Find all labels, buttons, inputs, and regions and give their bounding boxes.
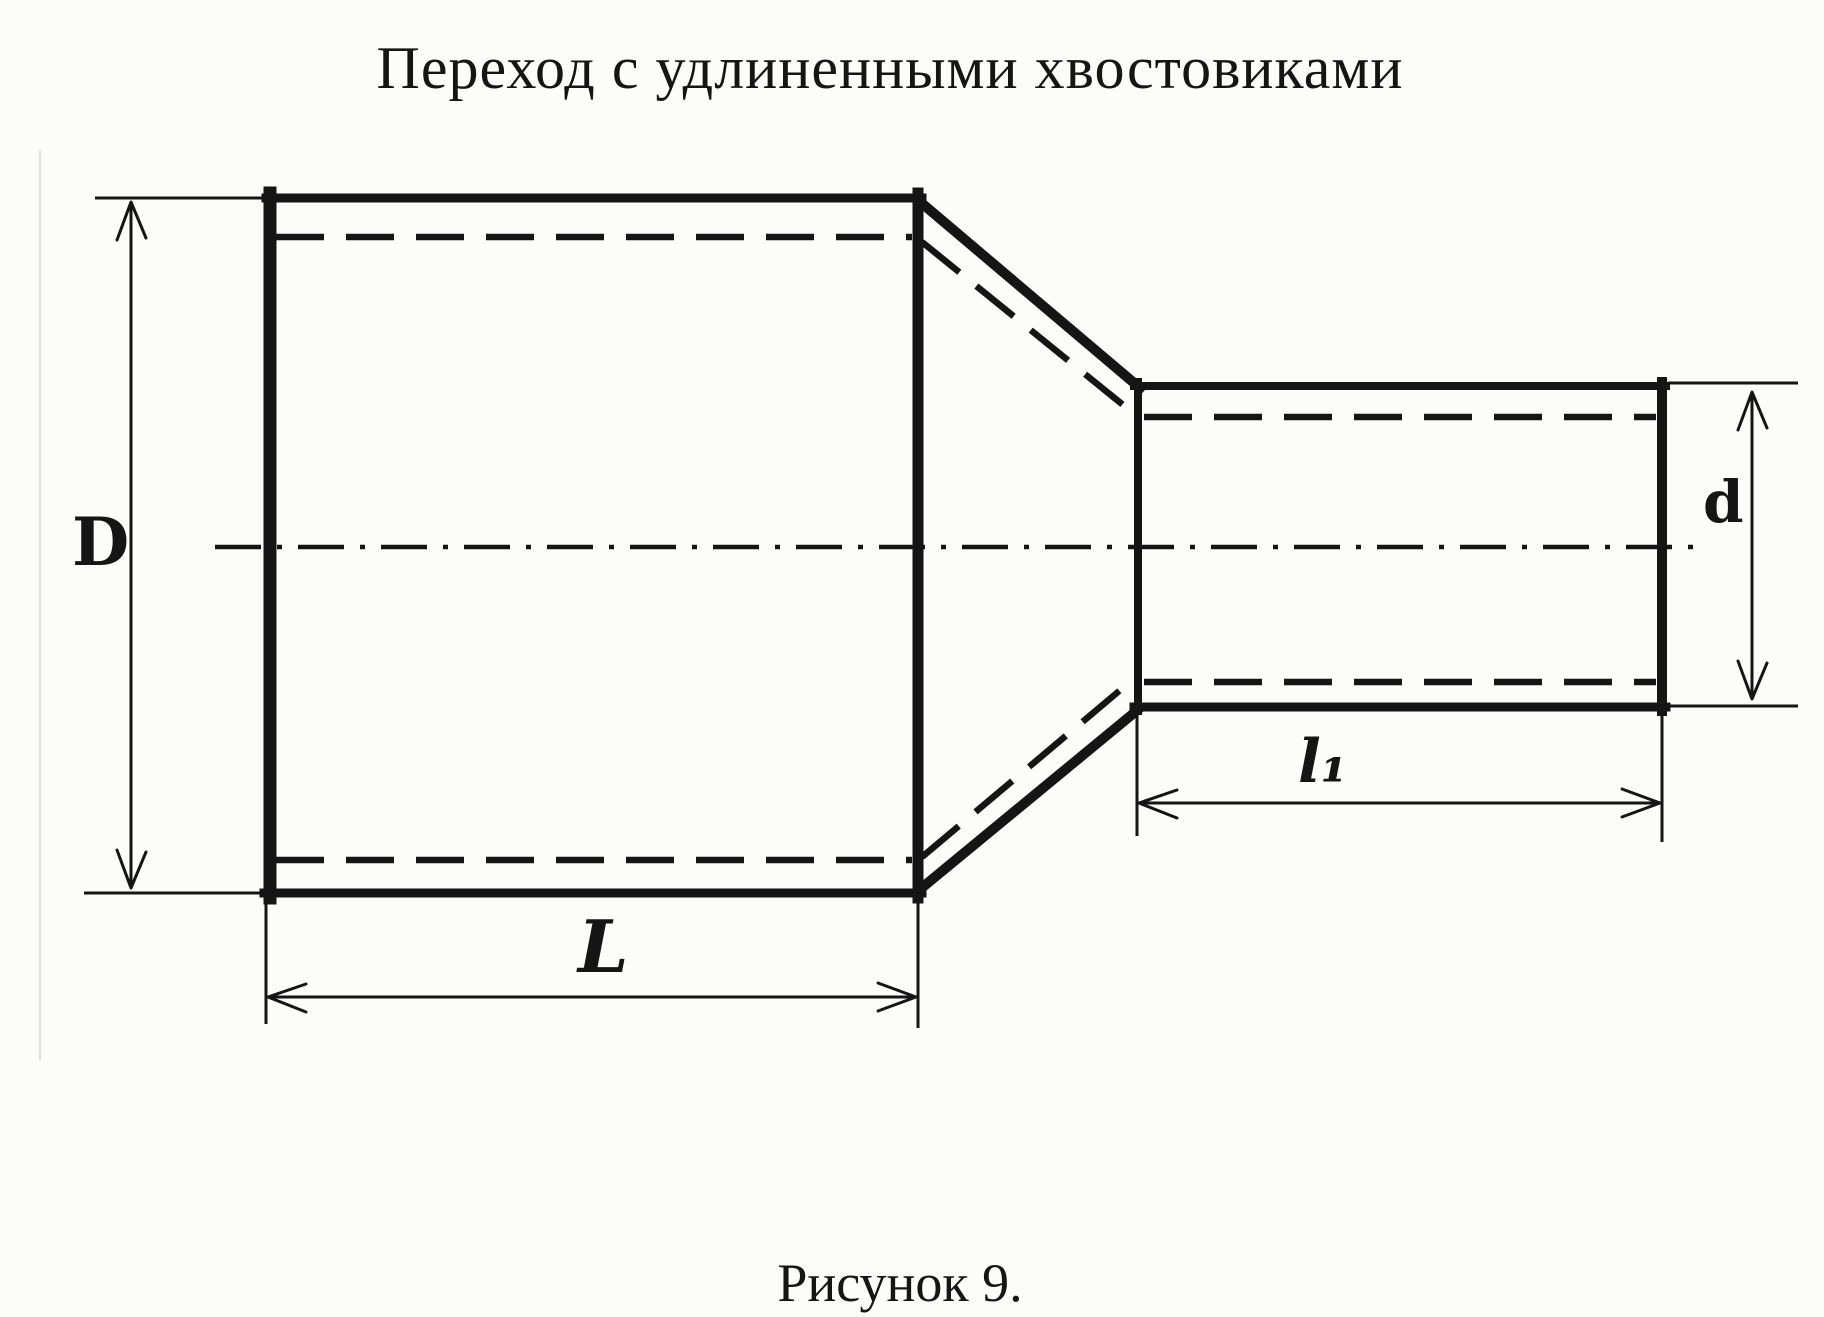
cone-bore-bottom-hidden-line [922,681,1131,857]
cone-top-edge [918,200,1140,388]
drawing-sheet: D L l₁ d Перех [0,0,1824,1317]
drawing-title: Переход с удлиненными хвостовиками [377,35,1404,101]
cone-bottom-edge [918,708,1140,891]
dimension-d: d [1668,383,1798,706]
figure-caption: Рисунок 9. [777,1253,1022,1313]
small-length-label: l₁ [1298,727,1347,797]
small-diameter-label: d [1703,468,1744,536]
large-length-label: L [576,904,629,989]
dimension-L: L [266,900,918,1028]
large-diameter-label: D [72,503,129,581]
dimension-l1: l₁ [1137,713,1662,842]
cone-bore-top-hidden-line [922,242,1133,413]
technical-drawing: D L l₁ d Перех [0,0,1824,1317]
